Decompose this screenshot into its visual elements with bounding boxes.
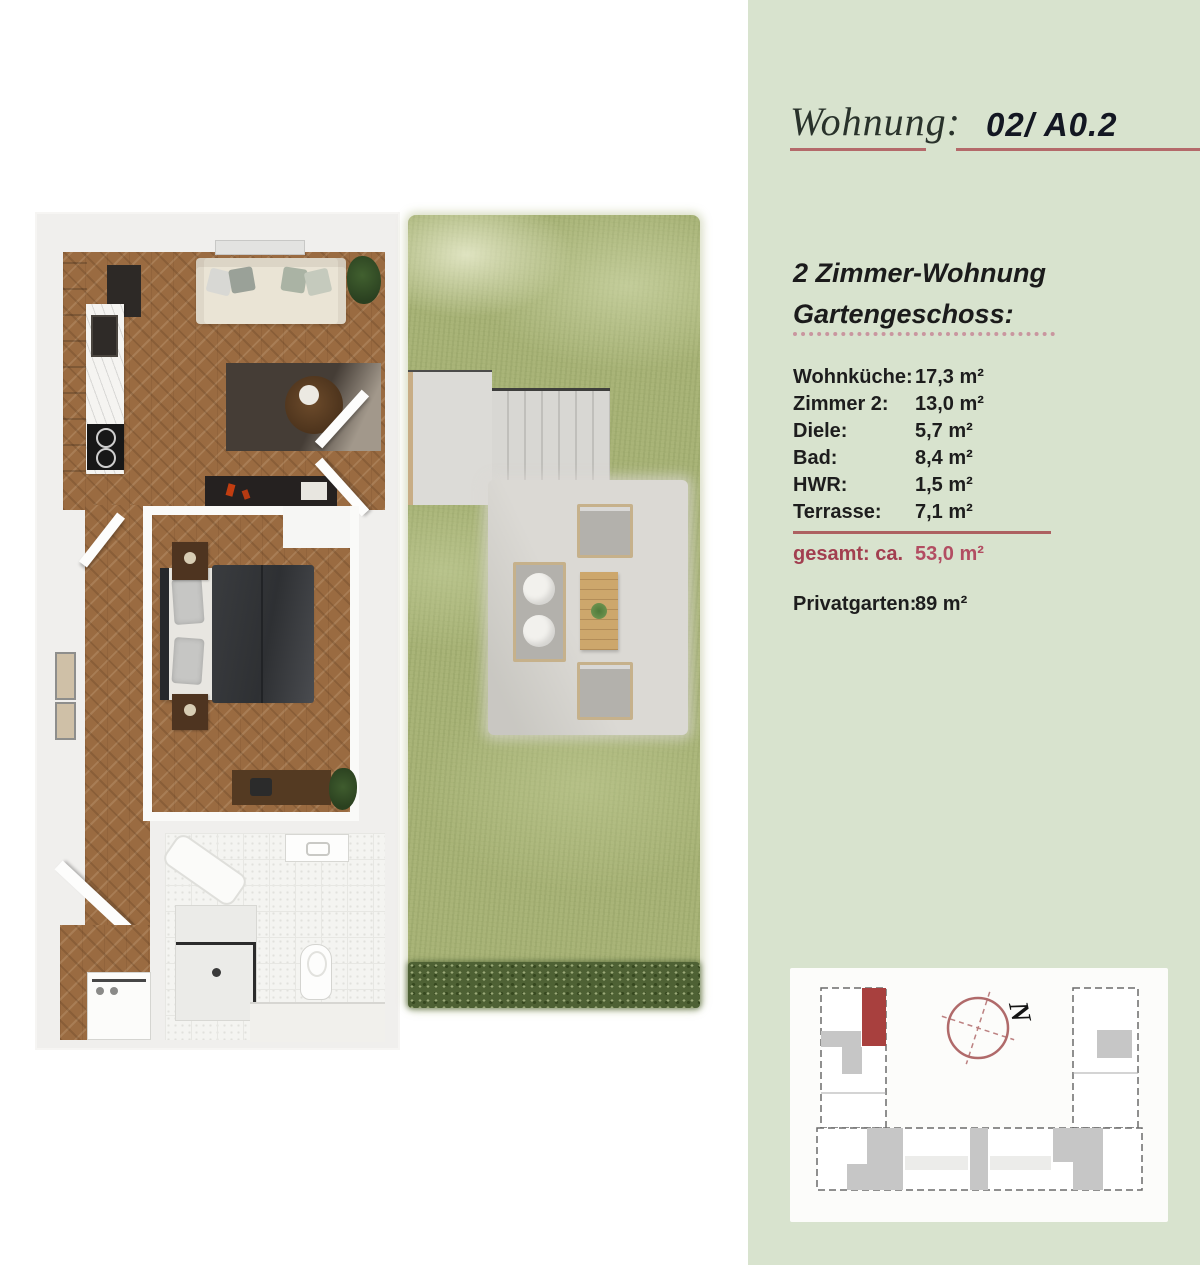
compass-north-label: N xyxy=(1002,998,1037,1027)
room-label: Terrasse: xyxy=(793,501,915,528)
stair-core xyxy=(867,1128,903,1170)
sofa xyxy=(196,258,346,324)
shower xyxy=(175,905,257,1021)
stair-core xyxy=(1097,1030,1132,1058)
room-area: 1,5 m² xyxy=(915,474,973,501)
room-label: HWR: xyxy=(793,474,915,501)
private-garden-rendering xyxy=(408,215,700,1008)
decor-item xyxy=(226,483,236,496)
room-row-terrasse: Terrasse: 7,1 m² xyxy=(793,501,1123,528)
living-room-window xyxy=(215,240,305,255)
bed xyxy=(160,568,312,700)
bed-headboard xyxy=(160,568,169,700)
room-row-wohnkueche: Wohnküche: 17,3 m² xyxy=(793,366,1123,393)
balcony-strip xyxy=(905,1156,968,1170)
total-label: gesamt: ca. xyxy=(793,543,915,566)
decor-item xyxy=(301,482,327,500)
apartment-type-line2: Gartengeschoss: xyxy=(793,294,1046,335)
room-label: Diele: xyxy=(793,420,915,447)
seat-cushion xyxy=(523,573,555,605)
room-area: 7,1 m² xyxy=(915,501,973,528)
sideboard xyxy=(205,476,337,507)
kitchen-sink xyxy=(91,315,118,357)
stair-core xyxy=(847,1164,903,1190)
info-panel: Wohnung: 02/ A0.2 2 Zimmer-Wohnung Garte… xyxy=(748,0,1200,1265)
garden-stairs xyxy=(492,388,610,488)
shower-drain xyxy=(212,968,221,977)
garden-label: Privatgarten: xyxy=(793,593,915,616)
dotted-divider xyxy=(793,332,1055,336)
bed-duvet xyxy=(212,565,314,703)
sofa-pillow xyxy=(304,268,333,297)
apartment-number: 02/ A0.2 xyxy=(986,106,1118,144)
sofa-pillow xyxy=(280,266,307,293)
floor-plan-rendering xyxy=(35,212,400,1050)
hallway-floor xyxy=(85,505,150,932)
room-label: Zimmer 2: xyxy=(793,393,915,420)
kitchen-stove xyxy=(87,424,124,470)
unit-underline xyxy=(956,148,1200,151)
room-area: 8,4 m² xyxy=(915,447,973,474)
dresser xyxy=(232,770,331,805)
private-garden-row: Privatgarten: 89 m² xyxy=(793,593,1123,616)
room-row-hwr: HWR: 1,5 m² xyxy=(793,474,1123,501)
seat-cushion xyxy=(523,615,555,647)
sofa-pillow xyxy=(228,266,256,294)
room-area: 5,7 m² xyxy=(915,420,973,447)
room-row-diele: Diele: 5,7 m² xyxy=(793,420,1123,447)
total-row: gesamt: ca. 53,0 m² xyxy=(793,543,1123,566)
stairs-landing xyxy=(408,370,492,505)
outdoor-loveseat xyxy=(513,562,566,662)
stair-core xyxy=(970,1128,988,1190)
total-divider xyxy=(793,531,1051,534)
title-underline xyxy=(790,148,926,151)
bathroom-sink xyxy=(285,834,349,862)
garden-hedge xyxy=(408,962,700,1008)
expose-page: Wohnung: 02/ A0.2 2 Zimmer-Wohnung Garte… xyxy=(0,0,1200,1265)
plant xyxy=(347,256,381,304)
garden-area: 89 m² xyxy=(915,593,967,616)
apartment-type: 2 Zimmer-Wohnung Gartengeschoss: xyxy=(793,253,1046,335)
compass-crosshair xyxy=(930,980,1026,1076)
apartment-location-marker xyxy=(862,988,886,1046)
room-row-zimmer2: Zimmer 2: 13,0 m² xyxy=(793,393,1123,420)
room-list: Wohnküche: 17,3 m² Zimmer 2: 13,0 m² Die… xyxy=(793,366,1123,528)
balcony-strip xyxy=(990,1156,1051,1170)
kitchen-cabinet xyxy=(63,258,87,472)
total-area: 53,0 m² xyxy=(915,543,984,566)
stair-core xyxy=(821,1031,861,1047)
page-title: Wohnung: xyxy=(790,98,961,145)
bathroom-platform xyxy=(250,1002,385,1042)
nightstand xyxy=(172,694,208,730)
stair-core xyxy=(1053,1128,1103,1162)
room-row-bad: Bad: 8,4 m² xyxy=(793,447,1123,474)
outdoor-armchair xyxy=(577,662,633,720)
stair-core xyxy=(1073,1162,1103,1190)
apartment-type-line1: 2 Zimmer-Wohnung xyxy=(793,253,1046,294)
nightstand xyxy=(172,542,208,580)
washing-machine xyxy=(87,972,151,1040)
room-label: Wohnküche: xyxy=(793,366,915,393)
stair-core xyxy=(842,1047,862,1074)
site-plan-card: N xyxy=(790,968,1168,1222)
site-plan: N xyxy=(790,968,1168,1222)
outdoor-table xyxy=(580,572,618,650)
room-area: 17,3 m² xyxy=(915,366,984,393)
bed-pillow xyxy=(171,577,204,625)
bedroom-window-niche xyxy=(283,506,350,548)
room-area: 13,0 m² xyxy=(915,393,984,420)
compass-axis xyxy=(966,992,989,1064)
toilet xyxy=(300,944,332,1000)
wall-picture xyxy=(55,652,76,700)
room-label: Bad: xyxy=(793,447,915,474)
decor-item xyxy=(242,489,251,500)
bed-pillow xyxy=(171,637,204,685)
wall-picture xyxy=(55,702,76,740)
outdoor-armchair xyxy=(577,504,633,558)
